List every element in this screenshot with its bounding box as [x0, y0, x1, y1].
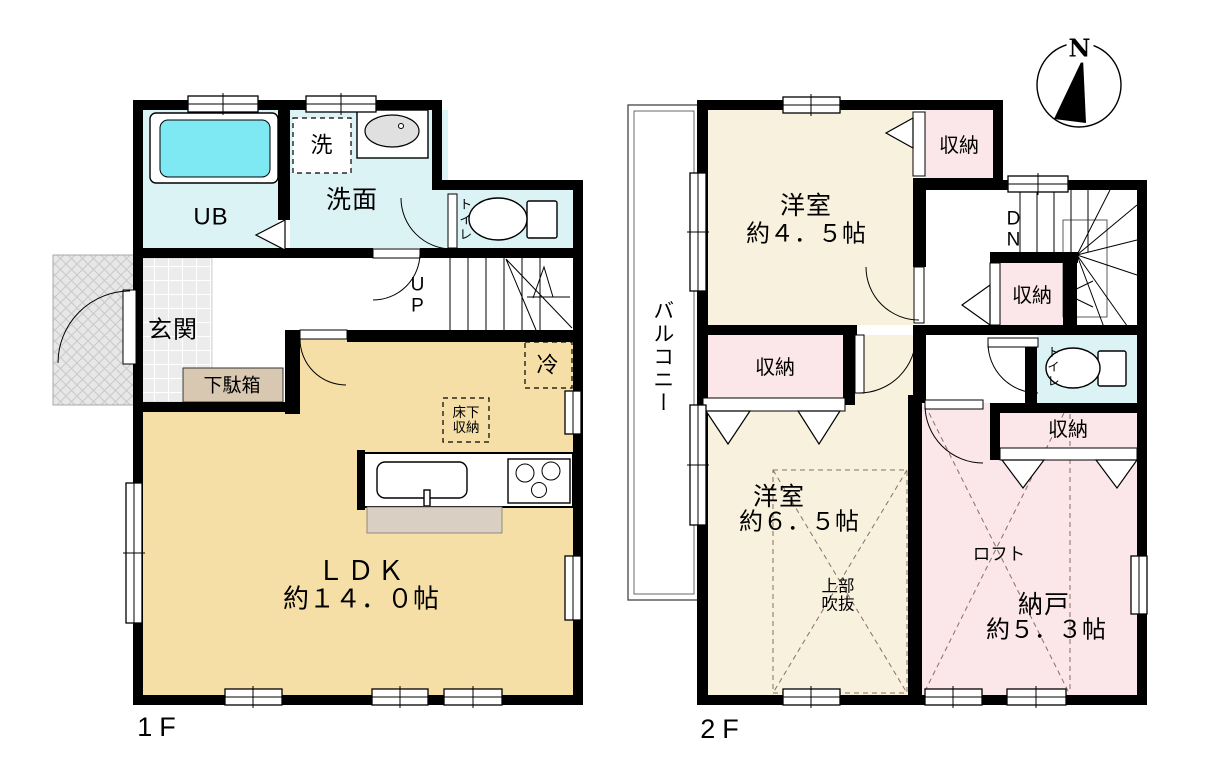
window-icon: [1007, 686, 1066, 708]
room65-name-label: 洋室: [753, 483, 805, 511]
storage-room-size-label: 約５．３帖: [986, 618, 1106, 645]
window-icon: [783, 94, 840, 116]
floor-plan: N UB 洗 洗面 トイレ U P 玄関 下駄箱 ＬＤＫ 約１４．０帖 冷 床下…: [0, 0, 1205, 770]
window-icon: [565, 391, 581, 434]
window-icon: [1008, 173, 1068, 195]
closet-c-label: 収納: [1048, 419, 1088, 441]
toilet2-label: トイレ: [1045, 345, 1059, 389]
window-icon: [444, 686, 502, 708]
window-icon: [687, 405, 709, 525]
kitchen-island: [367, 507, 502, 533]
storage-room-name-label: 納戸: [1018, 591, 1070, 619]
washer-label: 洗: [310, 134, 333, 159]
toilet-icon: [469, 198, 557, 240]
sink-icon: [357, 110, 428, 158]
compass-needle-icon: [1054, 58, 1086, 123]
stairs-down-label: D N: [1007, 209, 1022, 252]
floor1-plan: [53, 93, 583, 708]
ldk-size-label: 約１４．０帖: [283, 584, 439, 613]
closet-d-label: 収納: [755, 357, 795, 379]
faucet-icon: [424, 490, 430, 506]
room45-name-label: 洋室: [780, 192, 832, 220]
loft-label: ロフト: [973, 545, 1026, 565]
window-icon: [225, 686, 282, 708]
window-icon: [687, 173, 709, 291]
fridge-label: 冷: [536, 354, 559, 379]
compass-north-label: N: [1067, 36, 1094, 63]
bathtub-icon: [150, 113, 278, 183]
balcony-label: バルコニー: [650, 300, 674, 415]
window-icon: [783, 686, 840, 708]
window-icon: [1131, 556, 1147, 614]
underfloor-storage-label: 床下 収納: [453, 405, 480, 435]
ub-label: UB: [193, 205, 228, 232]
stove-icon: [508, 459, 570, 503]
floor-plan-drawing: [0, 0, 1205, 770]
window-icon: [925, 686, 982, 708]
open-ceiling-label: 上部 吹抜: [822, 578, 855, 615]
washroom-label: 洗面: [326, 186, 378, 214]
window-icon: [123, 483, 145, 623]
room45-size-label: 約４．５帖: [746, 222, 866, 249]
ldk-name-label: ＬＤＫ: [317, 556, 407, 586]
floor2-label: 2F: [700, 714, 746, 744]
stairs-up-label: U P: [411, 275, 426, 318]
kitchen-sink-icon: [377, 462, 467, 498]
entrance-label: 玄関: [148, 318, 198, 345]
window-icon: [565, 556, 581, 620]
window-icon: [306, 93, 376, 115]
toilet1-label: トイレ: [457, 198, 472, 243]
window-icon: [188, 93, 258, 115]
window-icon: [372, 686, 428, 708]
stairs-up: [450, 258, 572, 330]
closet-b-door-icon: [962, 263, 1000, 325]
floor1-label: 1F: [137, 712, 183, 742]
closet-a-label: 収納: [939, 135, 979, 157]
shoe-box-label: 下駄箱: [203, 375, 260, 396]
closet-b-label: 収納: [1012, 285, 1052, 307]
room65-size-label: 約６．５帖: [739, 510, 859, 537]
